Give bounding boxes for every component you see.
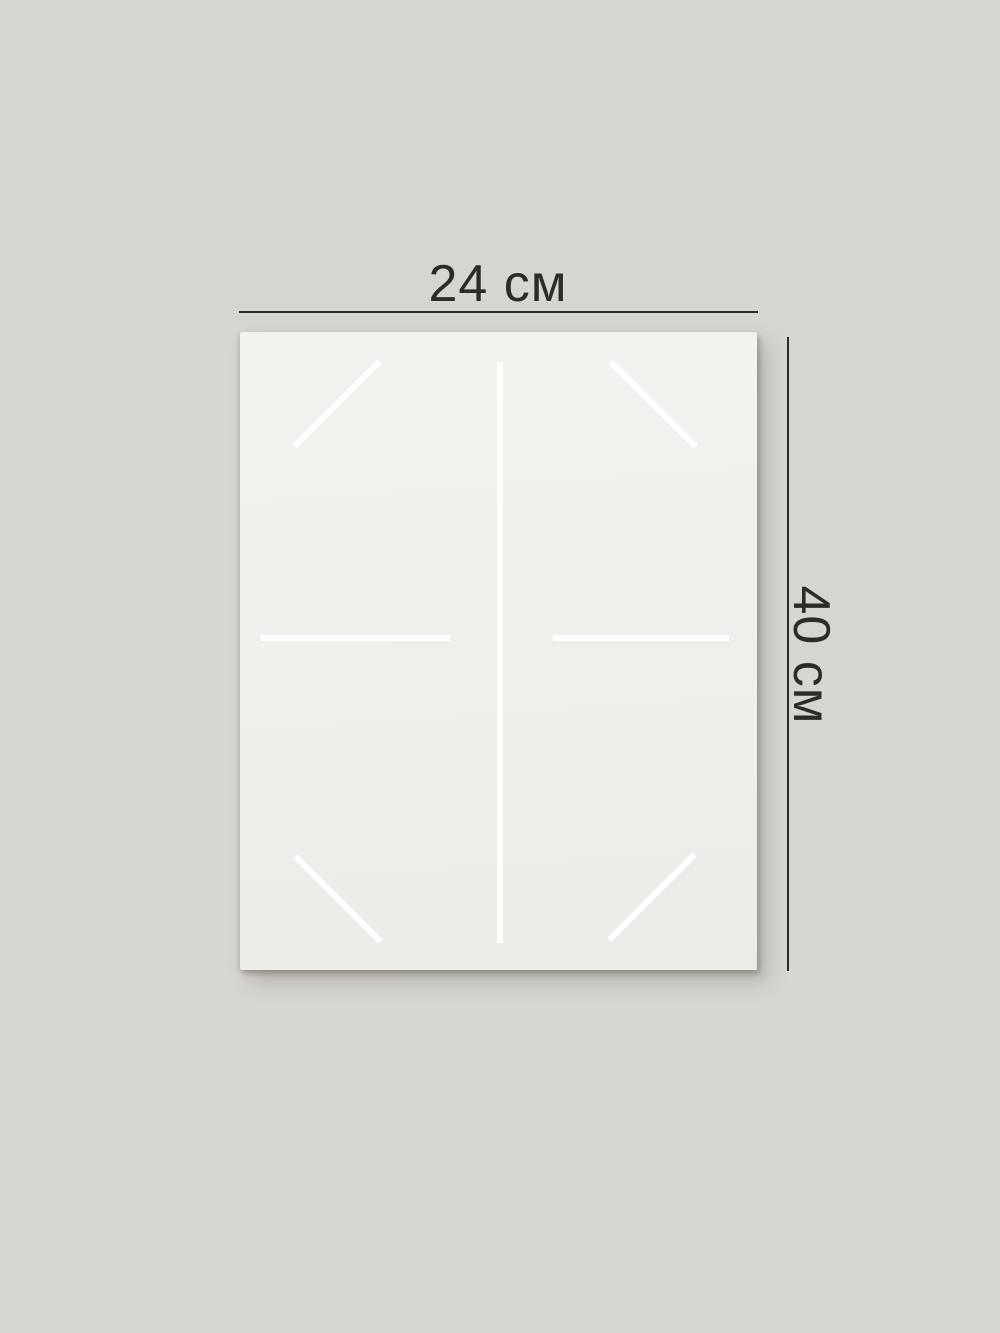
marking-diagonal-top-left (292, 359, 381, 448)
scene-background: 24 см 40 см (0, 0, 1000, 1333)
marking-horizontal-left (261, 635, 450, 641)
marking-center-vertical-line (497, 362, 503, 943)
product-board (240, 332, 757, 970)
marking-diagonal-bottom-left (293, 854, 382, 943)
marking-diagonal-bottom-right (607, 852, 696, 941)
width-dimension-label: 24 см (428, 258, 567, 310)
width-dimension-line (239, 311, 758, 313)
height-dimension-label: 40 см (785, 585, 837, 724)
marking-horizontal-right (553, 635, 729, 641)
marking-diagonal-top-right (608, 359, 697, 448)
